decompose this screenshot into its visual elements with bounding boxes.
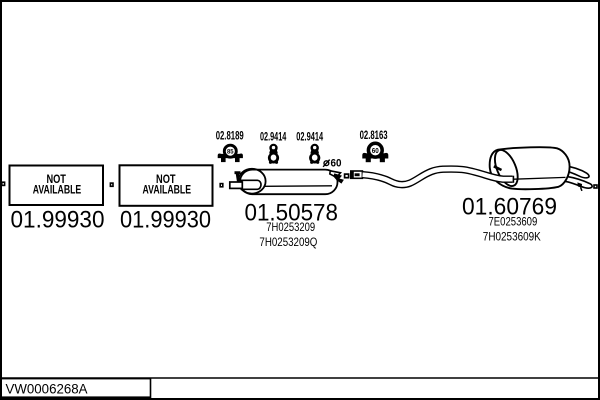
svg-text:02.9414: 02.9414: [260, 132, 287, 144]
svg-text:AVAILABLE: AVAILABLE: [33, 184, 82, 197]
svg-text:85: 85: [227, 149, 234, 156]
svg-text:60: 60: [372, 148, 379, 155]
svg-text:01.99930: 01.99930: [120, 207, 211, 234]
svg-text:60: 60: [331, 158, 342, 170]
svg-text:7H0253209Q: 7H0253209Q: [259, 235, 317, 249]
svg-text:01.99930: 01.99930: [11, 207, 105, 234]
svg-text:7H0253609K: 7H0253609K: [483, 230, 541, 244]
svg-text:02.8189: 02.8189: [216, 131, 244, 143]
svg-text:7H0253209: 7H0253209: [266, 220, 315, 234]
svg-text:02.9414: 02.9414: [296, 132, 323, 144]
svg-text:02.8163: 02.8163: [360, 130, 388, 142]
svg-text:VW0006268A: VW0006268A: [6, 381, 88, 396]
svg-text:7E0253609: 7E0253609: [489, 215, 538, 229]
svg-text:AVAILABLE: AVAILABLE: [143, 184, 192, 197]
